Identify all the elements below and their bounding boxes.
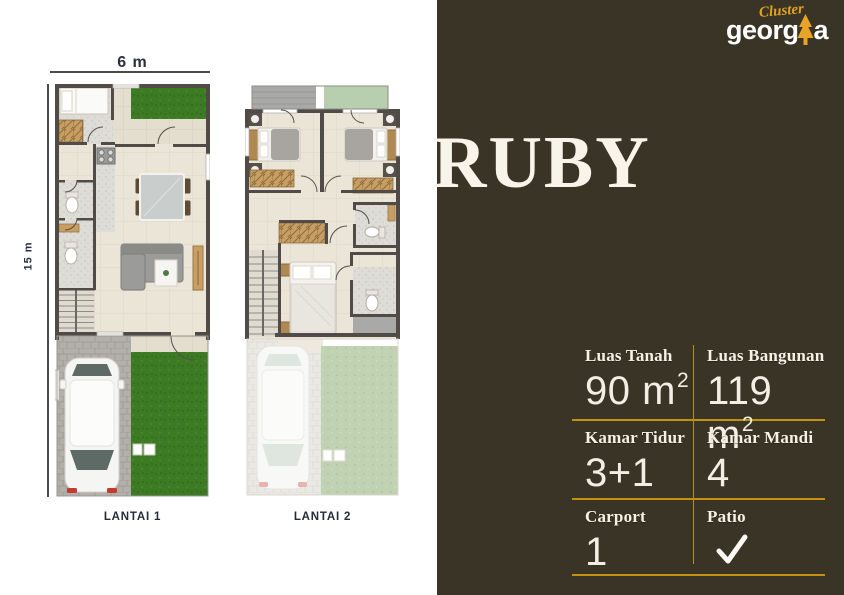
spec-label-kamar-tidur: Kamar Tidur <box>572 428 693 451</box>
rear-balcony <box>353 317 398 335</box>
dining-table <box>135 174 191 220</box>
width-dimension-line <box>50 71 210 73</box>
balcony-green <box>324 86 388 109</box>
spec-value-luas-bangunan: 119 m2 <box>693 369 825 419</box>
tree-icon <box>797 14 814 45</box>
coffee-table <box>155 260 177 286</box>
toilet <box>66 192 78 213</box>
single-bed <box>60 88 108 114</box>
front-grass <box>131 352 208 496</box>
wardrobe <box>59 120 83 142</box>
terrace-strip <box>131 336 208 352</box>
spec-value-patio <box>693 530 825 574</box>
car <box>60 358 124 493</box>
page-title: RUBY <box>433 126 651 200</box>
ac-unit <box>323 450 332 461</box>
wardrobe <box>279 223 325 243</box>
spec-value-luas-tanah: 90 m2 <box>572 369 693 419</box>
car-below-faded <box>257 346 309 489</box>
check-icon <box>715 534 749 564</box>
table-vertical-divider <box>693 345 694 564</box>
spec-table: Luas Tanah Luas Bangunan 90 m2 119 m2 Ka… <box>572 339 825 576</box>
ac-unit <box>144 444 155 455</box>
sideboard <box>193 246 203 290</box>
spec-label-kamar-mandi: Kamar Mandi <box>693 428 825 451</box>
brand-name-suffix: a <box>813 17 828 44</box>
grass-below-faded <box>321 346 398 495</box>
toilet <box>366 290 378 311</box>
floor-plan-2-drawing <box>245 84 400 497</box>
stove <box>97 148 115 164</box>
spec-label-patio: Patio <box>693 507 825 530</box>
wardrobe <box>250 170 294 187</box>
table-divider <box>572 574 825 576</box>
ac-unit <box>133 444 142 455</box>
floor-plan-1-drawing <box>55 84 210 498</box>
spec-value-kamar-tidur: 3+1 <box>572 451 693 498</box>
floor-plan-lantai-2 <box>245 84 400 497</box>
height-dimension-line <box>47 84 49 497</box>
spec-label-luas-tanah: Luas Tanah <box>572 346 693 369</box>
width-dimension-label: 6 m <box>55 54 210 72</box>
plan-label-lantai-1: LANTAI 1 <box>55 511 210 523</box>
stairs <box>247 250 279 336</box>
plan-label-lantai-2: LANTAI 2 <box>245 511 400 523</box>
spec-value-kamar-mandi: 4 <box>693 451 825 498</box>
spec-label-carport: Carport <box>572 507 693 530</box>
garden-grass <box>131 88 206 119</box>
ac-unit <box>334 450 345 461</box>
brand-logo: Cluster georg a <box>726 14 828 44</box>
floor-plan-lantai-1 <box>55 84 210 498</box>
height-dimension-label: 15 m <box>23 241 35 270</box>
info-panel: Cluster georg a RUBY Luas Tanah Luas Ban… <box>437 0 844 595</box>
spec-label-luas-bangunan: Luas Bangunan <box>693 346 825 369</box>
brochure-page: 6 m 15 m <box>0 0 844 595</box>
stairs <box>57 290 95 336</box>
spec-value-carport: 1 <box>572 530 693 574</box>
